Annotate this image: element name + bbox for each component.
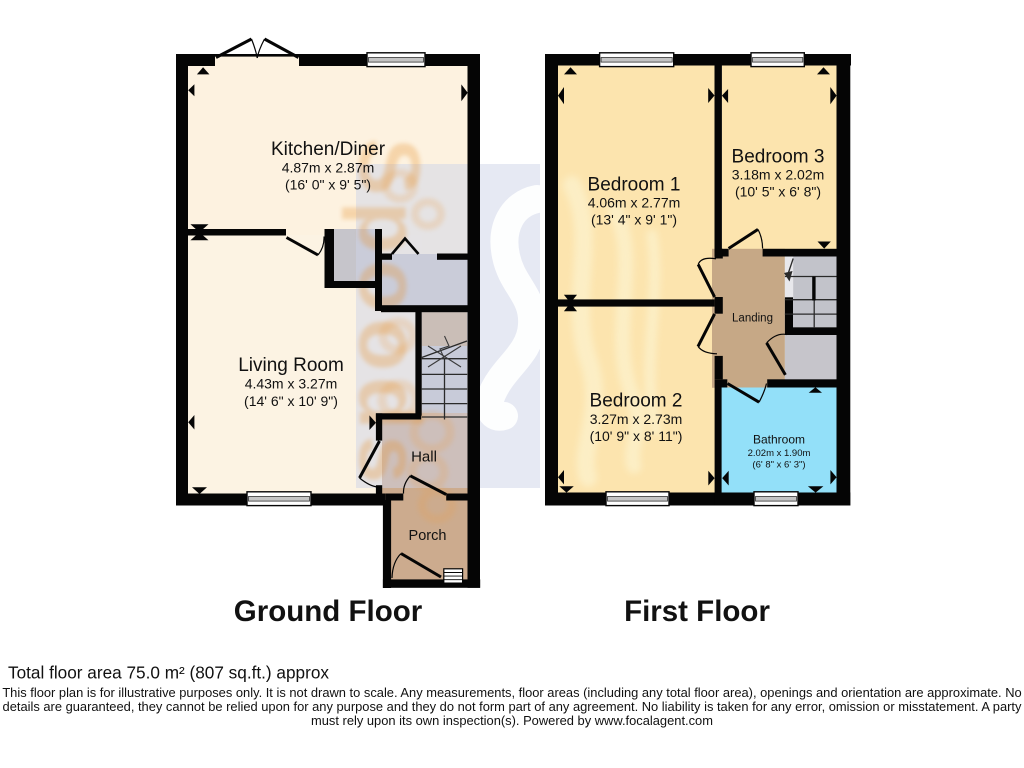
svg-text:Ground Floor: Ground Floor bbox=[234, 595, 423, 628]
svg-text:3.27m x 2.73m: 3.27m x 2.73m bbox=[590, 411, 683, 427]
svg-text:Living Room: Living Room bbox=[238, 355, 344, 376]
svg-text:(10' 5" x 6' 8"): (10' 5" x 6' 8") bbox=[735, 184, 821, 200]
svg-text:(14' 6" x 10' 9"): (14' 6" x 10' 9") bbox=[244, 393, 338, 409]
svg-text:(16' 0" x 9' 5"): (16' 0" x 9' 5") bbox=[285, 176, 371, 192]
svg-text:Landing: Landing bbox=[732, 313, 773, 325]
svg-text:3.18m x 2.02m: 3.18m x 2.02m bbox=[732, 167, 825, 183]
svg-text:4.43m x 3.27m: 4.43m x 3.27m bbox=[245, 376, 338, 392]
svg-text:This floor plan is for illustr: This floor plan is for illustrative purp… bbox=[2, 685, 1021, 700]
svg-text:Bedroom 1: Bedroom 1 bbox=[588, 175, 681, 196]
svg-text:must rely upon its own inspect: must rely upon its own inspection(s). Po… bbox=[311, 713, 713, 728]
svg-text:Bedroom 2: Bedroom 2 bbox=[590, 391, 683, 412]
svg-text:(13' 4" x 9' 1"): (13' 4" x 9' 1") bbox=[591, 212, 677, 228]
svg-text:details are guaranteed, they c: details are guaranteed, they cannot be r… bbox=[3, 699, 1022, 714]
svg-text:Total floor area 75.0 m² (807: Total floor area 75.0 m² (807 sq.ft.) ap… bbox=[8, 663, 329, 683]
svg-text:Bedroom 3: Bedroom 3 bbox=[732, 147, 825, 168]
svg-text:4.87m x 2.87m: 4.87m x 2.87m bbox=[282, 159, 375, 175]
svg-text:Porch: Porch bbox=[409, 528, 447, 544]
svg-text:Hall: Hall bbox=[411, 449, 437, 466]
svg-text:First Floor: First Floor bbox=[624, 595, 770, 628]
svg-text:4.06m x 2.77m: 4.06m x 2.77m bbox=[588, 195, 681, 211]
svg-text:Kitchen/Diner: Kitchen/Diner bbox=[271, 139, 386, 160]
svg-text:(10' 9" x 8' 11"): (10' 9" x 8' 11") bbox=[590, 428, 683, 444]
svg-text:Bathroom: Bathroom bbox=[753, 433, 805, 447]
svg-text:2.02m x 1.90m: 2.02m x 1.90m bbox=[748, 448, 811, 459]
svg-text:(6' 8" x 6' 3"): (6' 8" x 6' 3") bbox=[752, 460, 805, 471]
